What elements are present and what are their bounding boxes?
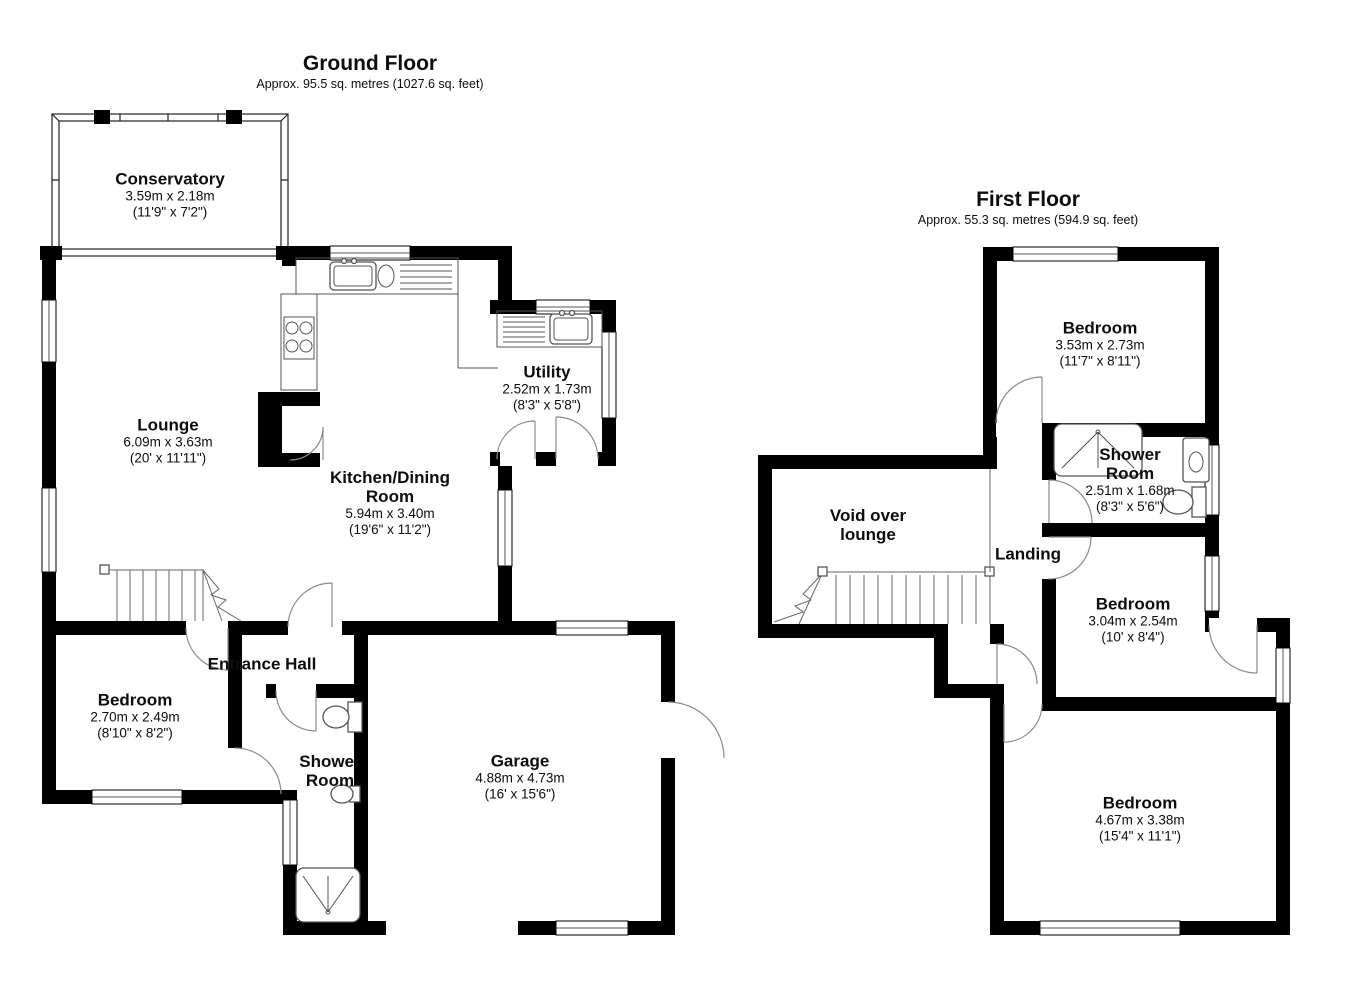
ground-floor-stairs: [100, 565, 241, 621]
drainer-lines: [400, 265, 452, 289]
room-name: Shower Room: [285, 752, 375, 790]
room-dim-imperial: (20' x 11'11"): [78, 451, 258, 467]
room-name: Garage: [435, 752, 605, 771]
ground-floor-subtitle: Approx. 95.5 sq. metres (1027.6 sq. feet…: [200, 76, 540, 92]
toilet-cistern: [348, 702, 362, 732]
room-label-shower-room-first: Shower Room 2.51m x 1.68m (8'3" x 5'6"): [1080, 445, 1180, 515]
room-dim-imperial: (16' x 15'6"): [435, 787, 605, 803]
room-name: Bedroom: [1050, 794, 1230, 813]
room-label-bedroom-ground: Bedroom 2.70m x 2.49m (8'10" x 8'2"): [50, 691, 220, 742]
first-floor-stairs: [774, 469, 994, 624]
toilet: [323, 706, 349, 728]
room-dim-imperial: (8'10" x 8'2"): [50, 726, 220, 742]
room-name: Bedroom: [1048, 595, 1218, 614]
room-name: Conservatory: [80, 170, 260, 189]
room-label-garage: Garage 4.88m x 4.73m (16' x 15'6"): [435, 752, 605, 803]
room-label-bedroom-middle: Bedroom 3.04m x 2.54m (10' x 8'4"): [1048, 595, 1218, 646]
room-label-bedroom-rear: Bedroom 4.67m x 3.38m (15'4" x 11'1"): [1050, 794, 1230, 845]
room-label-landing: Landing: [973, 545, 1083, 564]
ground-floor-title-block: Ground Floor Approx. 95.5 sq. metres (10…: [200, 52, 540, 92]
room-dim-metric: 5.94m x 3.40m: [310, 506, 470, 522]
floorplan-canvas: Ground Floor Approx. 95.5 sq. metres (10…: [0, 0, 1350, 982]
room-label-void: Void over lounge: [828, 506, 908, 544]
room-label-conservatory: Conservatory 3.59m x 2.18m (11'9" x 7'2"…: [80, 170, 260, 221]
room-name: Void over lounge: [828, 506, 908, 544]
ground-floor-title: Ground Floor: [200, 52, 540, 76]
room-dim-imperial: (8'3" x 5'6"): [1080, 499, 1180, 515]
room-dim-imperial: (15'4" x 11'1"): [1050, 829, 1230, 845]
room-dim-metric: 2.70m x 2.49m: [50, 710, 220, 726]
basin: [1183, 438, 1209, 482]
room-label-entrance-hall: Entrance Hall: [207, 655, 317, 674]
room-name: Landing: [973, 545, 1083, 564]
room-name: Lounge: [78, 416, 258, 435]
ground-floor-walls: [40, 246, 675, 935]
room-name: Utility: [487, 363, 607, 382]
room-name: Bedroom: [50, 691, 220, 710]
room-dim-metric: 6.09m x 3.63m: [78, 435, 258, 451]
first-floor-title-block: First Floor Approx. 55.3 sq. metres (594…: [858, 188, 1198, 228]
room-name: Bedroom: [1015, 319, 1185, 338]
room-name: Shower Room: [1080, 445, 1180, 483]
toilet-cistern: [1192, 487, 1206, 517]
room-dim-imperial: (11'7" x 8'11"): [1015, 354, 1185, 370]
room-dim-imperial: (19'6" x 11'2"): [310, 522, 470, 538]
room-label-shower-room-ground: Shower Room: [285, 752, 375, 790]
room-dim-metric: 3.53m x 2.73m: [1015, 338, 1185, 354]
room-name: Kitchen/Dining Room: [310, 468, 470, 506]
room-label-utility: Utility 2.52m x 1.73m (8'3" x 5'8"): [487, 363, 607, 414]
room-label-lounge: Lounge 6.09m x 3.63m (20' x 11'11"): [78, 416, 258, 467]
first-floor-subtitle: Approx. 55.3 sq. metres (594.9 sq. feet): [858, 212, 1198, 228]
garage-door: [386, 900, 518, 940]
room-label-kitchen-dining: Kitchen/Dining Room 5.94m x 3.40m (19'6"…: [310, 468, 470, 538]
room-dim-metric: 3.59m x 2.18m: [80, 189, 260, 205]
room-dim-metric: 4.67m x 3.38m: [1050, 813, 1230, 829]
ground-floor-fixtures: [281, 258, 602, 922]
room-label-bedroom-front: Bedroom 3.53m x 2.73m (11'7" x 8'11"): [1015, 319, 1185, 370]
room-dim-metric: 2.51m x 1.68m: [1080, 483, 1180, 499]
room-dim-imperial: (11'9" x 7'2"): [80, 205, 260, 221]
first-floor-title: First Floor: [858, 188, 1198, 212]
room-dim-metric: 4.88m x 4.73m: [435, 771, 605, 787]
room-dim-imperial: (8'3" x 5'8"): [487, 398, 607, 414]
room-dim-metric: 3.04m x 2.54m: [1048, 614, 1218, 630]
room-name: Entrance Hall: [207, 655, 317, 674]
room-dim-metric: 2.52m x 1.73m: [487, 382, 607, 398]
room-dim-imperial: (10' x 8'4"): [1048, 630, 1218, 646]
